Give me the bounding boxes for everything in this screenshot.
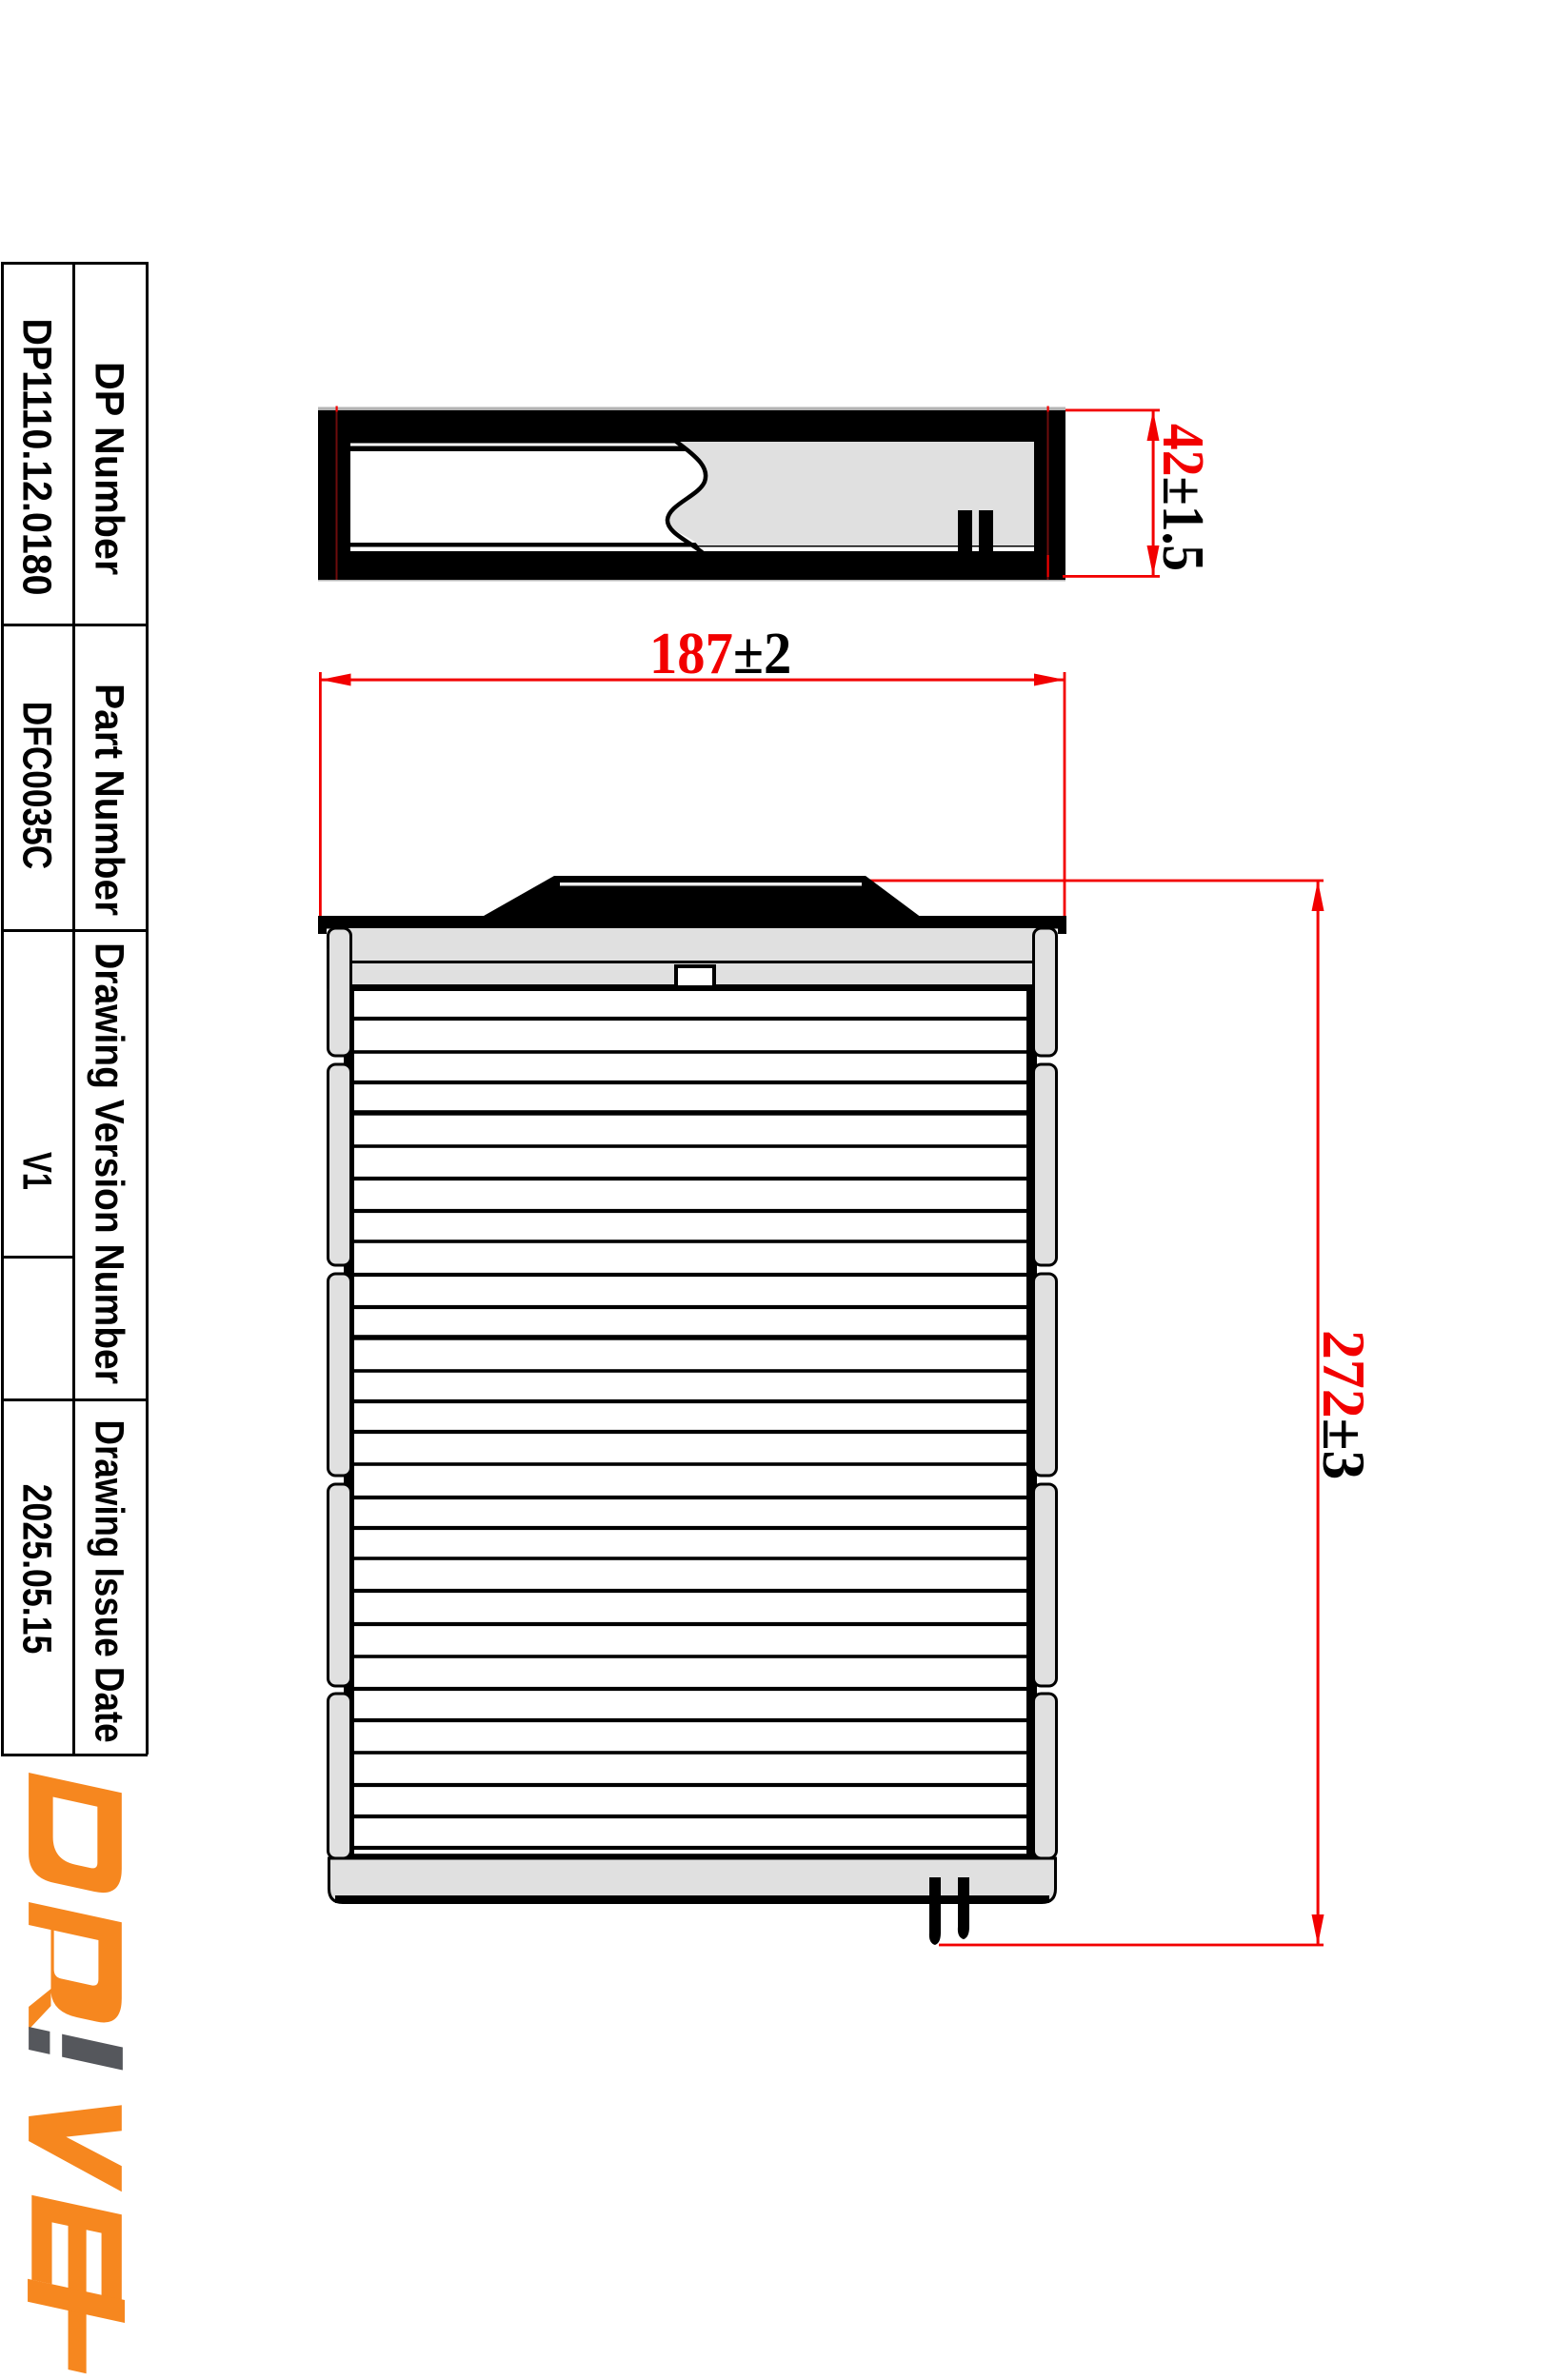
svg-text:42±1.5: 42±1.5 bbox=[1150, 424, 1217, 571]
svg-text:272±3: 272±3 bbox=[1310, 1330, 1377, 1479]
svg-text:187±2: 187±2 bbox=[649, 621, 791, 686]
